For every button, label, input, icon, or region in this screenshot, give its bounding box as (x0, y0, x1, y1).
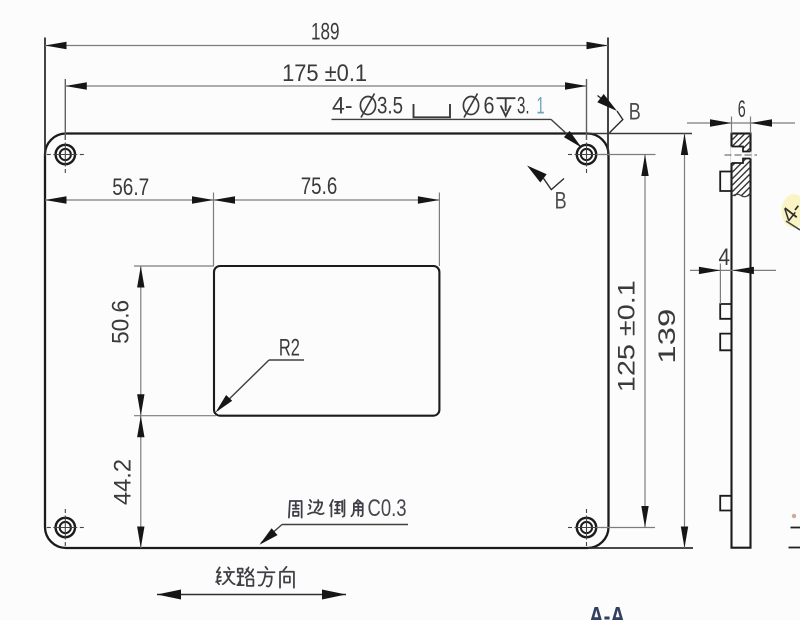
svg-text:A-A: A-A (589, 603, 625, 620)
svg-text:44.2: 44.2 (110, 459, 137, 505)
svg-text:B: B (555, 188, 567, 215)
svg-text:1: 1 (537, 93, 545, 120)
svg-text:125 ±0.1: 125 ±0.1 (613, 280, 640, 392)
svg-text:4: 4 (719, 244, 731, 271)
svg-text:50.6: 50.6 (108, 300, 135, 344)
svg-text:C0.3: C0.3 (368, 495, 407, 522)
svg-text:6: 6 (738, 96, 746, 123)
svg-text:3.5: 3.5 (377, 93, 403, 120)
svg-text:139: 139 (654, 309, 681, 364)
svg-text:B: B (629, 99, 641, 126)
svg-text:175 ±0.1: 175 ±0.1 (282, 60, 367, 87)
svg-text:4-: 4- (332, 93, 353, 120)
svg-text:56.7: 56.7 (112, 174, 149, 201)
svg-text:6: 6 (484, 93, 495, 120)
svg-text:75.6: 75.6 (301, 173, 338, 200)
svg-text:189: 189 (311, 19, 340, 46)
svg-text:R2: R2 (279, 335, 300, 362)
svg-text:3.: 3. (517, 93, 530, 120)
